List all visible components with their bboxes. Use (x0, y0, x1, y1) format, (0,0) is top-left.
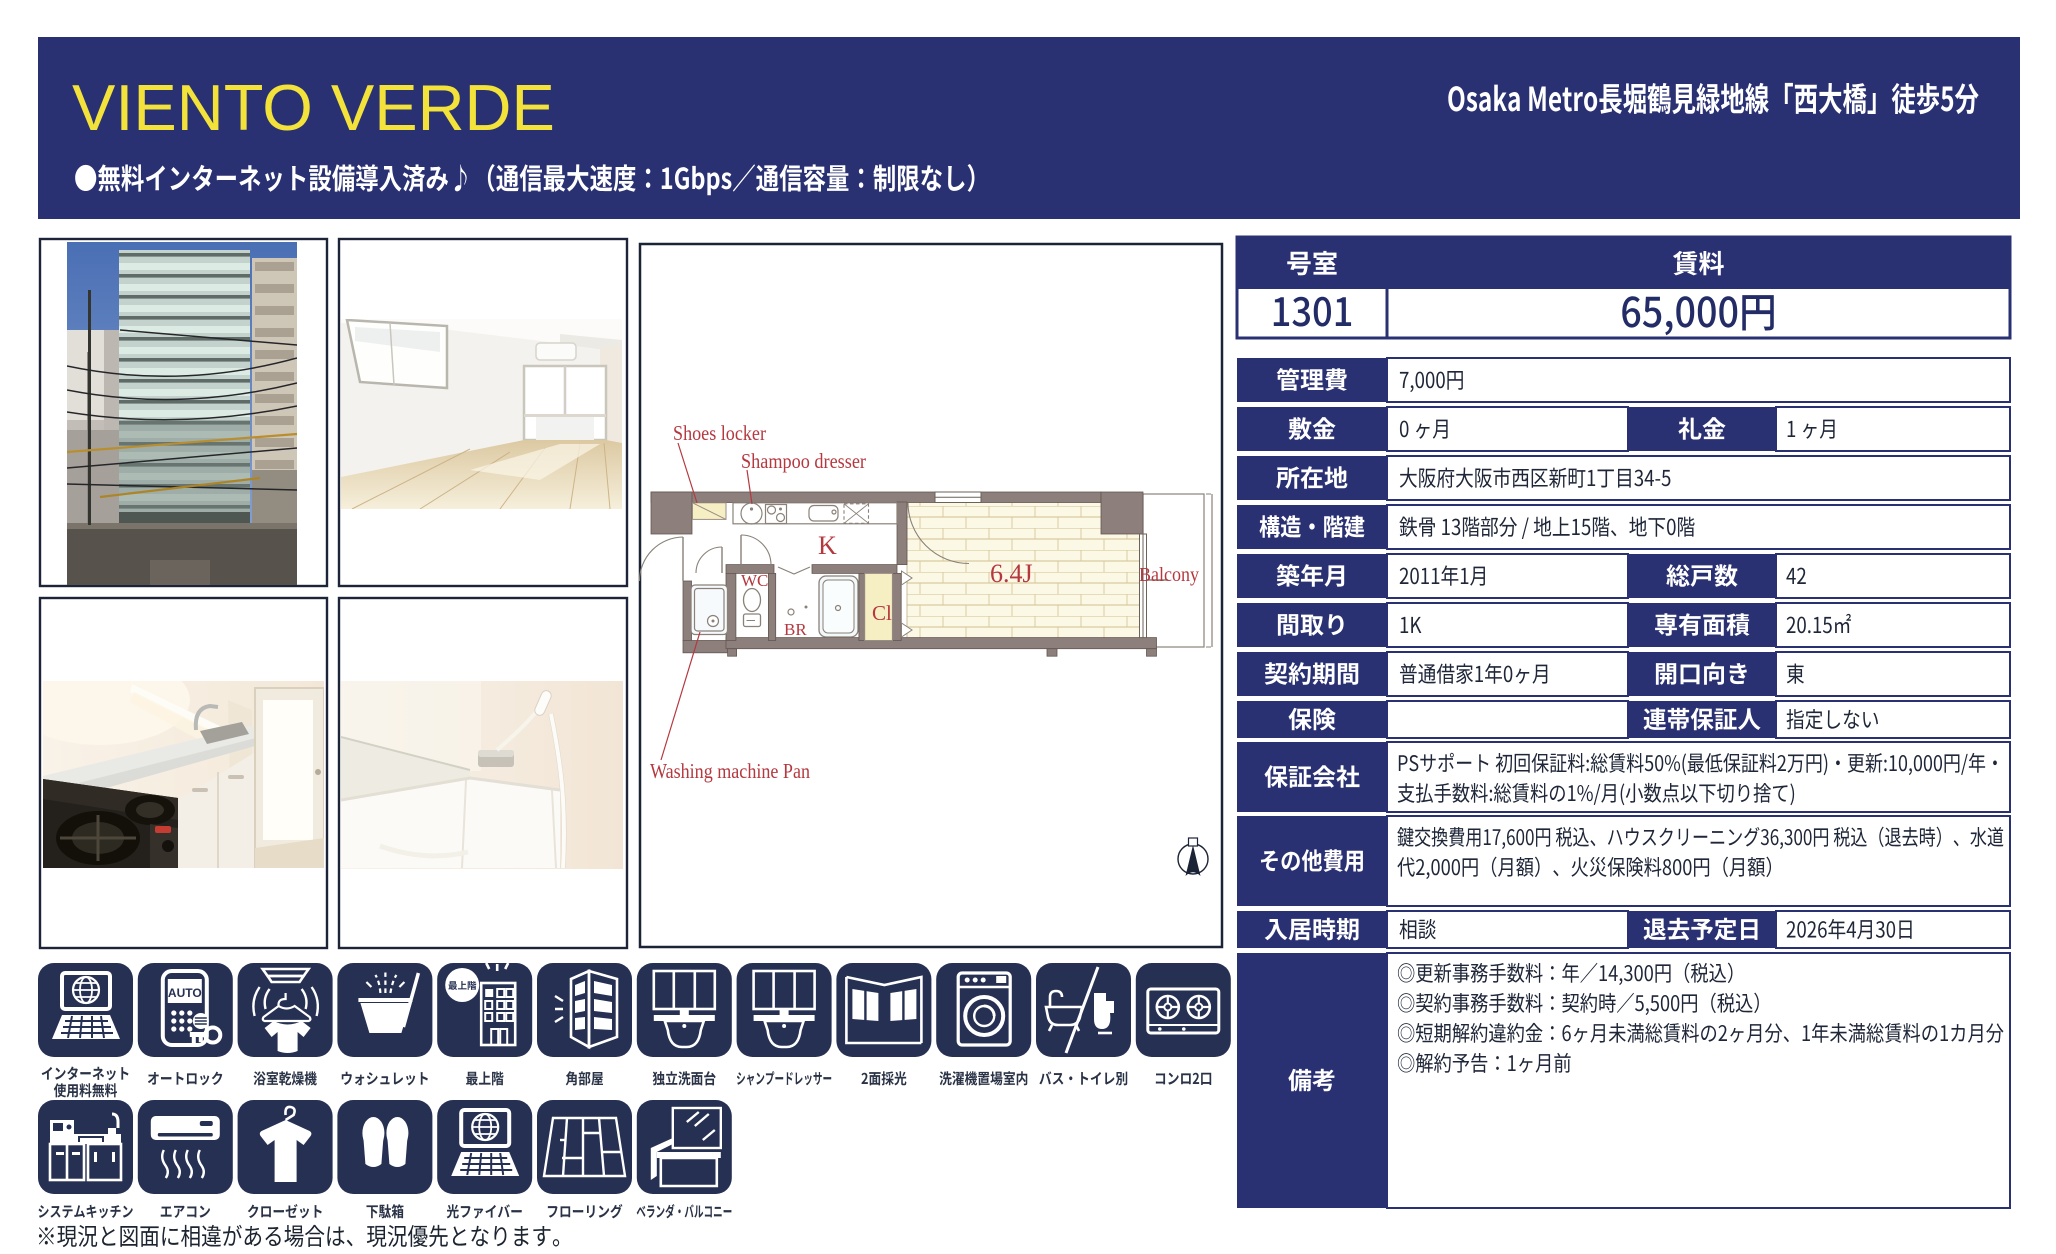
svg-text:VIENTO VERDE: VIENTO VERDE (72, 71, 555, 144)
svg-text:WC: WC (741, 571, 768, 590)
svg-text:6.4J: 6.4J (990, 559, 1033, 588)
svg-text:Shoes locker: Shoes locker (673, 421, 766, 445)
svg-text:K: K (818, 531, 837, 560)
svg-text:Washing machine Pan: Washing machine Pan (650, 759, 810, 783)
svg-text:Balcony: Balcony (1139, 564, 1199, 586)
svg-text:Cl: Cl (872, 601, 892, 625)
svg-text:Shampoo dresser: Shampoo dresser (741, 449, 866, 473)
svg-text:BR: BR (784, 620, 807, 639)
svg-text:AUTO: AUTO (168, 986, 202, 1000)
